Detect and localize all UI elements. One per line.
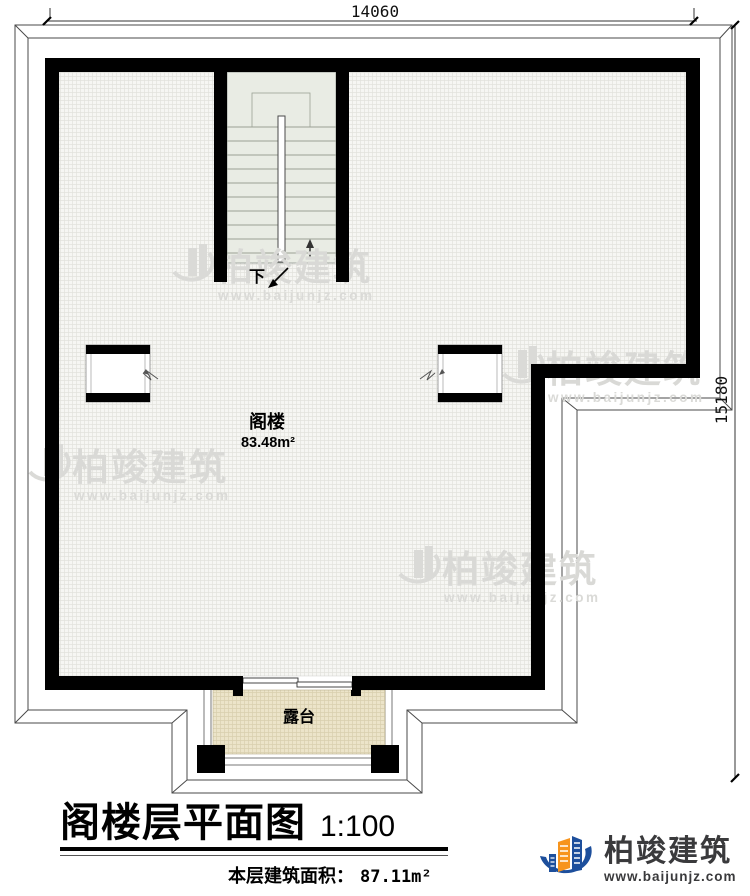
watermark-brand: 柏竣建筑: [442, 548, 598, 590]
roof-window-left: [86, 345, 158, 402]
door-jamb-right: [351, 690, 361, 696]
drawing-scale: 1:100: [320, 810, 395, 844]
wall-stair-left: [214, 72, 227, 282]
door-jamb-left: [233, 690, 243, 696]
watermark-url: www.baijunjz.com: [217, 288, 375, 303]
logo-url-text: www.baijunjz.com: [604, 869, 737, 884]
terrace: [204, 690, 392, 765]
terrace-door: [243, 678, 352, 687]
dimension-right: 15180: [712, 21, 739, 782]
wall-step: [545, 364, 700, 378]
watermark-brand: 柏竣建筑: [72, 446, 228, 488]
floor-plan-page: 14060 15180: [0, 0, 750, 896]
title-underline-thin: [60, 855, 448, 856]
page-title: 阁楼层平面图: [60, 802, 306, 844]
watermark-url: www.baijunjz.com: [547, 390, 705, 405]
logo-icon: [534, 830, 596, 888]
title-block: 阁楼层平面图 1:100: [60, 802, 460, 844]
stairs-down-label: 下: [249, 269, 265, 286]
wall-top: [45, 58, 700, 72]
wall-left: [45, 58, 59, 690]
logo-brand-text: 柏竣建筑: [604, 835, 737, 868]
floor-area-value: 87.11m²: [360, 867, 432, 887]
stairwell: [227, 72, 336, 263]
wall-right-upper: [686, 58, 700, 378]
floor-plan-drawing: 14060 15180: [0, 0, 750, 896]
terrace-column-left: [197, 745, 225, 773]
wall-stair-right: [336, 72, 349, 282]
brand-logo: 柏竣建筑 www.baijunjz.com: [534, 830, 737, 888]
watermark-url: www.baijunjz.com: [443, 590, 601, 605]
dimension-top: 14060: [43, 2, 698, 25]
terrace-label: 露台: [283, 707, 315, 726]
dimension-right-value: 15180: [712, 376, 731, 424]
floor-area-label: 本层建筑面积：: [228, 866, 354, 886]
stair-handrail: [278, 116, 285, 262]
terrace-column-right: [371, 745, 399, 773]
dimension-top-value: 14060: [351, 2, 399, 21]
room-area: 83.48m²: [241, 435, 295, 451]
wall-bottom-right: [352, 676, 545, 690]
watermark-url: www.baijunjz.com: [73, 488, 231, 503]
wall-bottom-left: [45, 676, 243, 690]
wall-right-lower: [531, 364, 545, 690]
floor-area-row: 本层建筑面积：87.11m²: [228, 862, 432, 888]
title-underline: [60, 847, 448, 851]
room-label: 阁楼: [249, 411, 285, 432]
